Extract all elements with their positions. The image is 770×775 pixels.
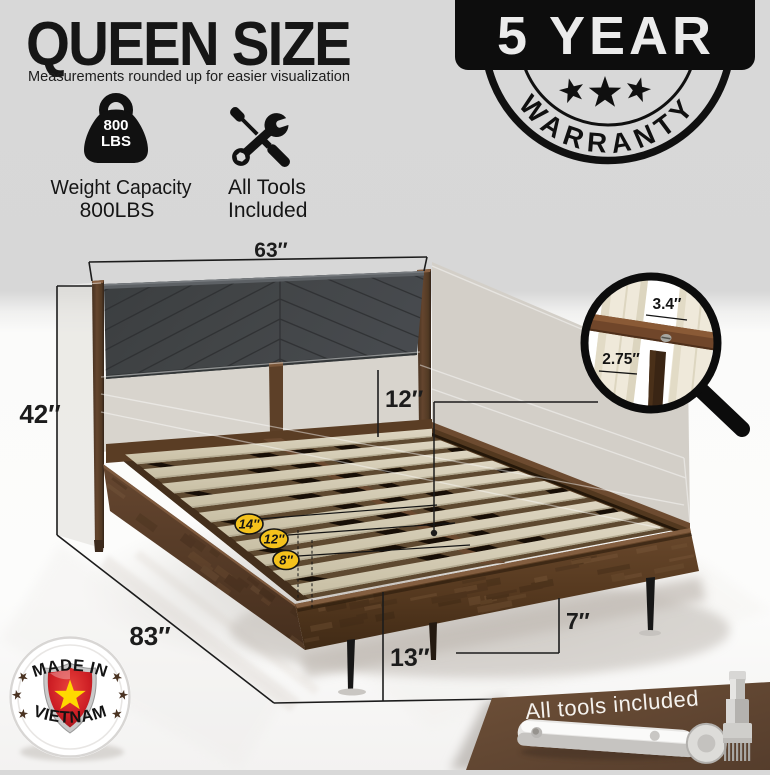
svg-text:83″: 83″: [129, 621, 170, 651]
svg-text:14″: 14″: [239, 517, 260, 532]
svg-text:7″: 7″: [566, 608, 590, 634]
svg-text:2.75″: 2.75″: [602, 351, 640, 368]
svg-text:LBS: LBS: [101, 133, 131, 150]
svg-text:12″: 12″: [264, 532, 285, 547]
svg-text:42″: 42″: [19, 399, 60, 429]
svg-text:5 YEAR: 5 YEAR: [497, 6, 715, 66]
svg-text:12″: 12″: [385, 386, 424, 413]
svg-text:Measurements rounded up for ea: Measurements rounded up for easier visua…: [28, 69, 350, 85]
svg-text:Weight Capacity: Weight Capacity: [51, 176, 193, 199]
svg-text:800: 800: [103, 117, 128, 134]
svg-text:Included: Included: [228, 199, 307, 222]
svg-text:3.4″: 3.4″: [653, 296, 683, 313]
svg-text:8″: 8″: [279, 553, 293, 568]
svg-text:13″: 13″: [390, 644, 430, 672]
svg-text:63″: 63″: [254, 239, 287, 262]
svg-text:All Tools: All Tools: [228, 176, 306, 199]
svg-text:800LBS: 800LBS: [80, 199, 155, 222]
